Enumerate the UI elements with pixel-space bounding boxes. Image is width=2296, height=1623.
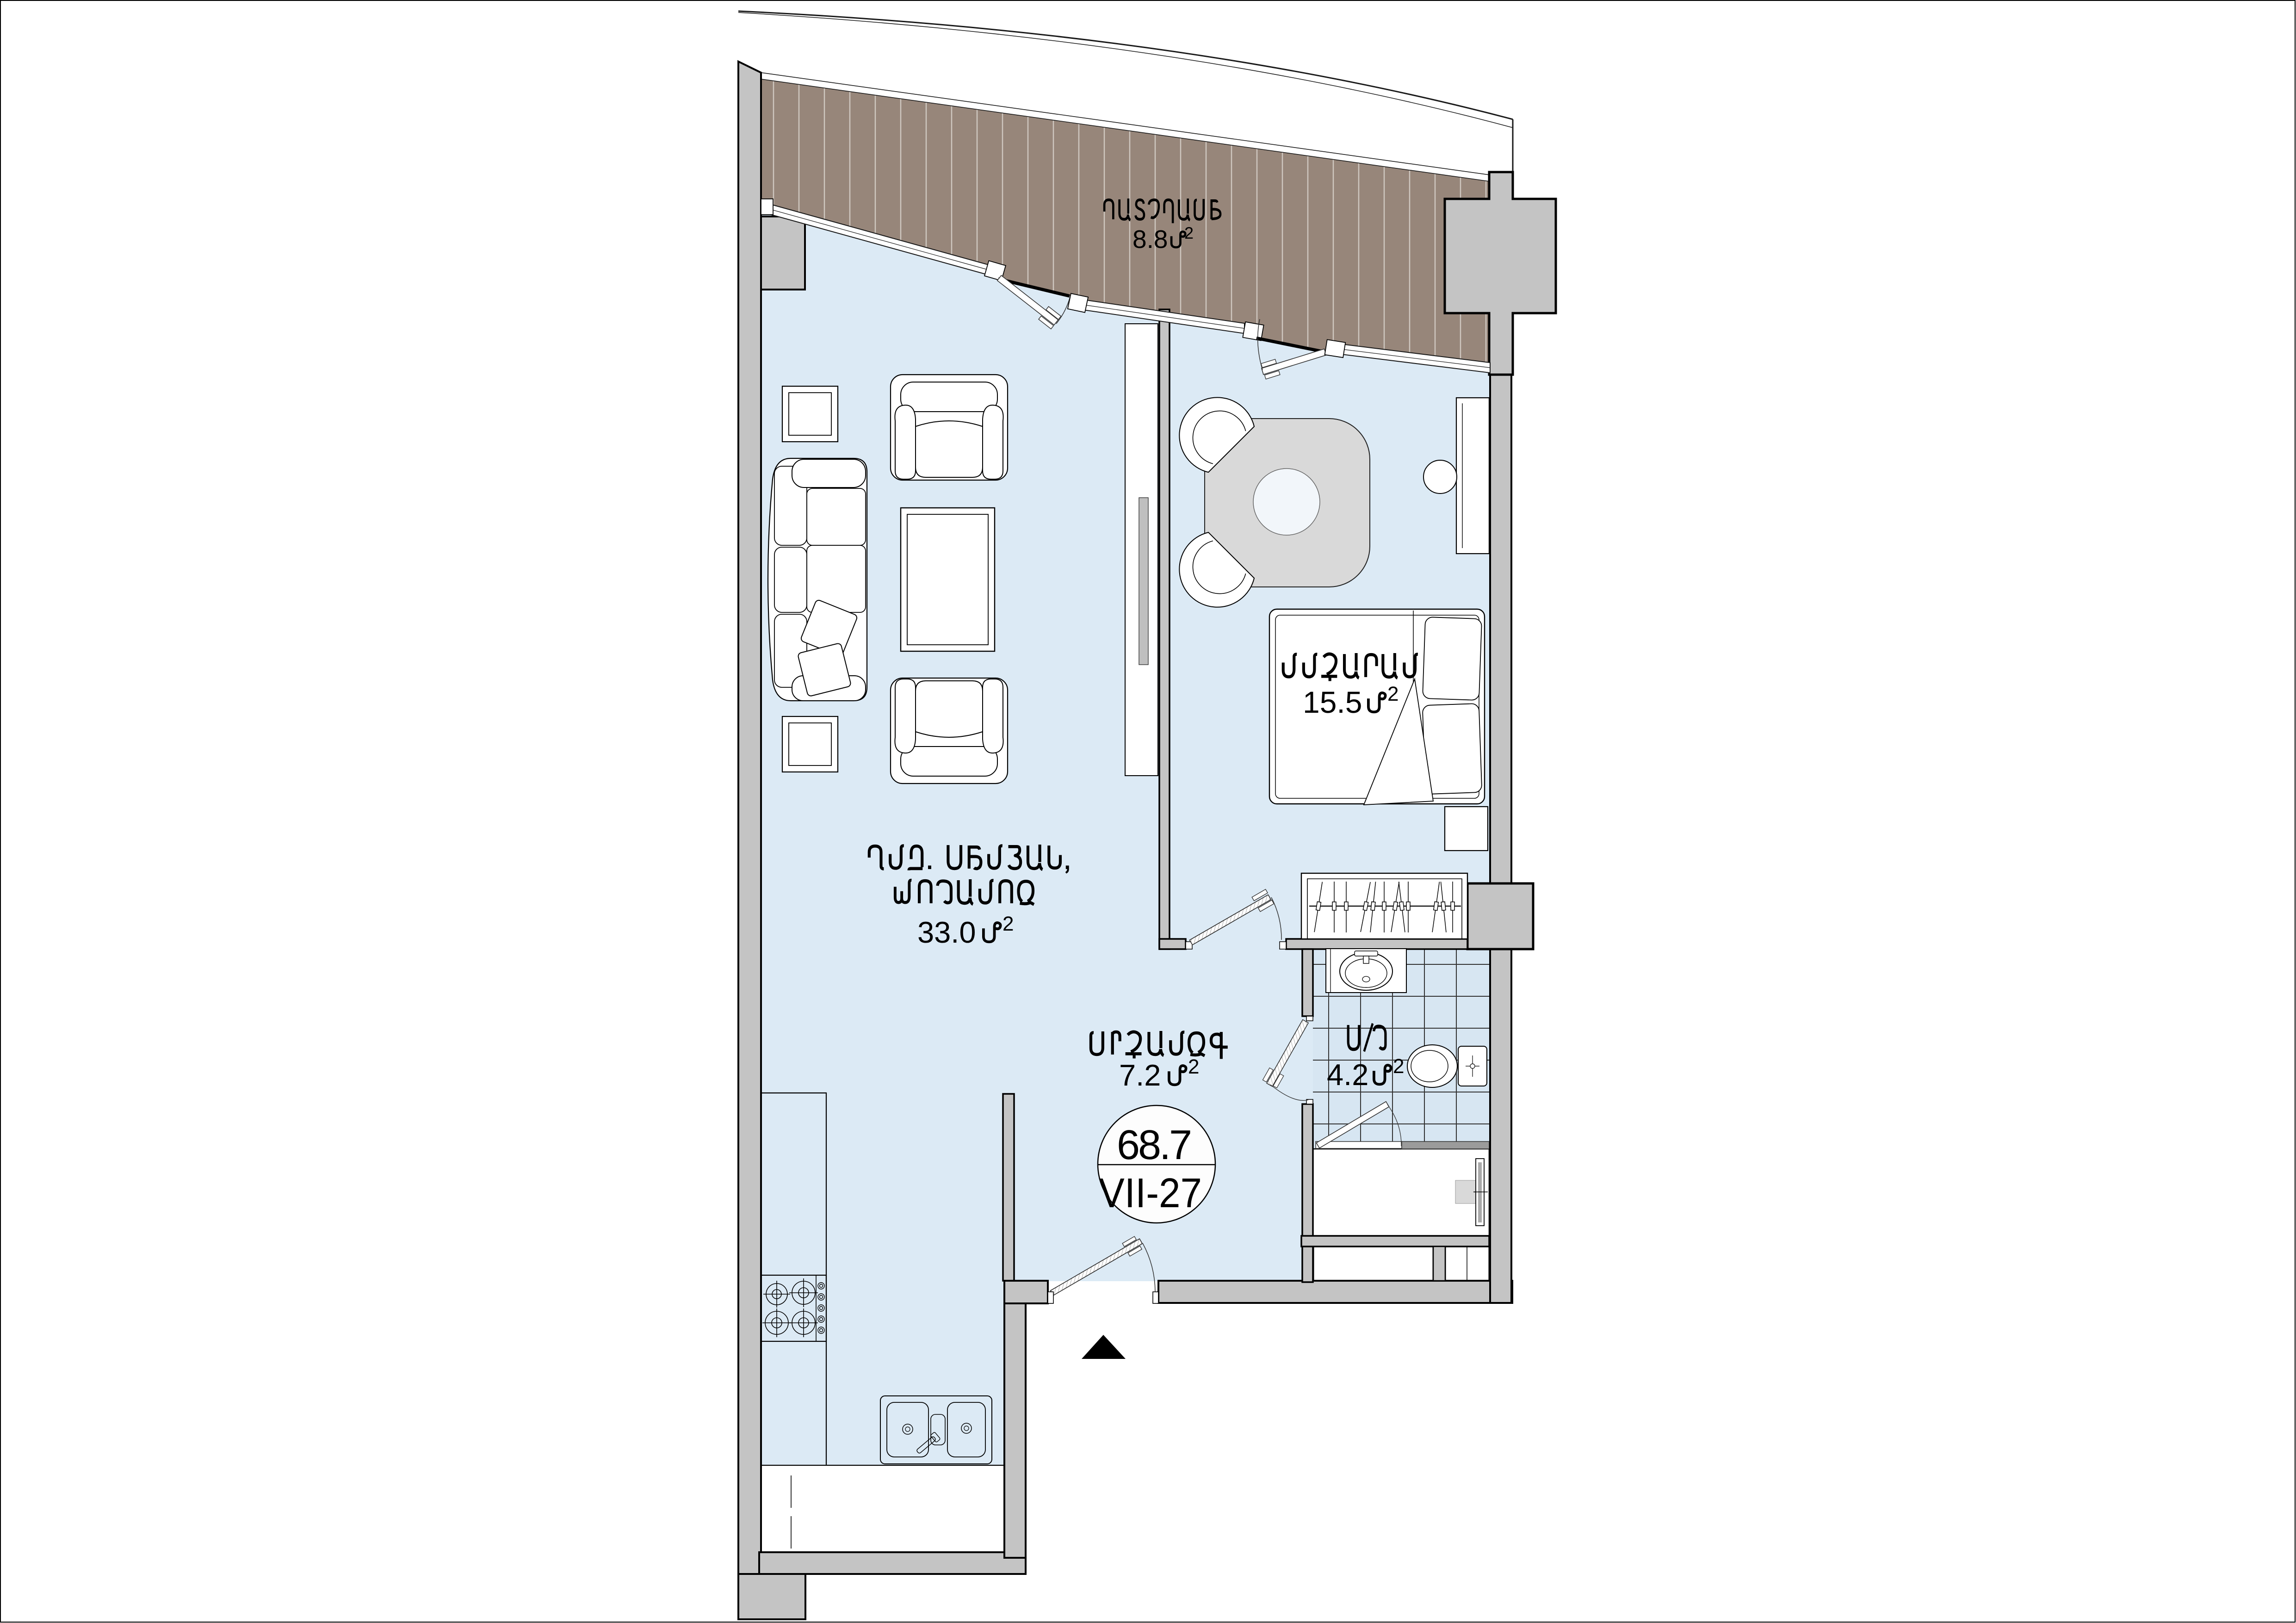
svg-text:2: 2 bbox=[1003, 913, 1014, 935]
svg-text:VII-27: VII-27 bbox=[1099, 1170, 1202, 1216]
svg-text:4.2: 4.2 bbox=[1327, 1058, 1368, 1092]
svg-text:33.0: 33.0 bbox=[917, 915, 976, 949]
svg-text:2: 2 bbox=[1188, 1055, 1199, 1078]
svg-text:7.2: 7.2 bbox=[1119, 1058, 1161, 1092]
svg-text:68.7: 68.7 bbox=[1117, 1122, 1192, 1168]
svg-text:8.8: 8.8 bbox=[1133, 225, 1168, 253]
svg-text:15.5: 15.5 bbox=[1303, 685, 1362, 719]
svg-text:2: 2 bbox=[1387, 683, 1399, 705]
svg-text:2: 2 bbox=[1184, 223, 1194, 242]
svg-text:2: 2 bbox=[1393, 1055, 1404, 1078]
